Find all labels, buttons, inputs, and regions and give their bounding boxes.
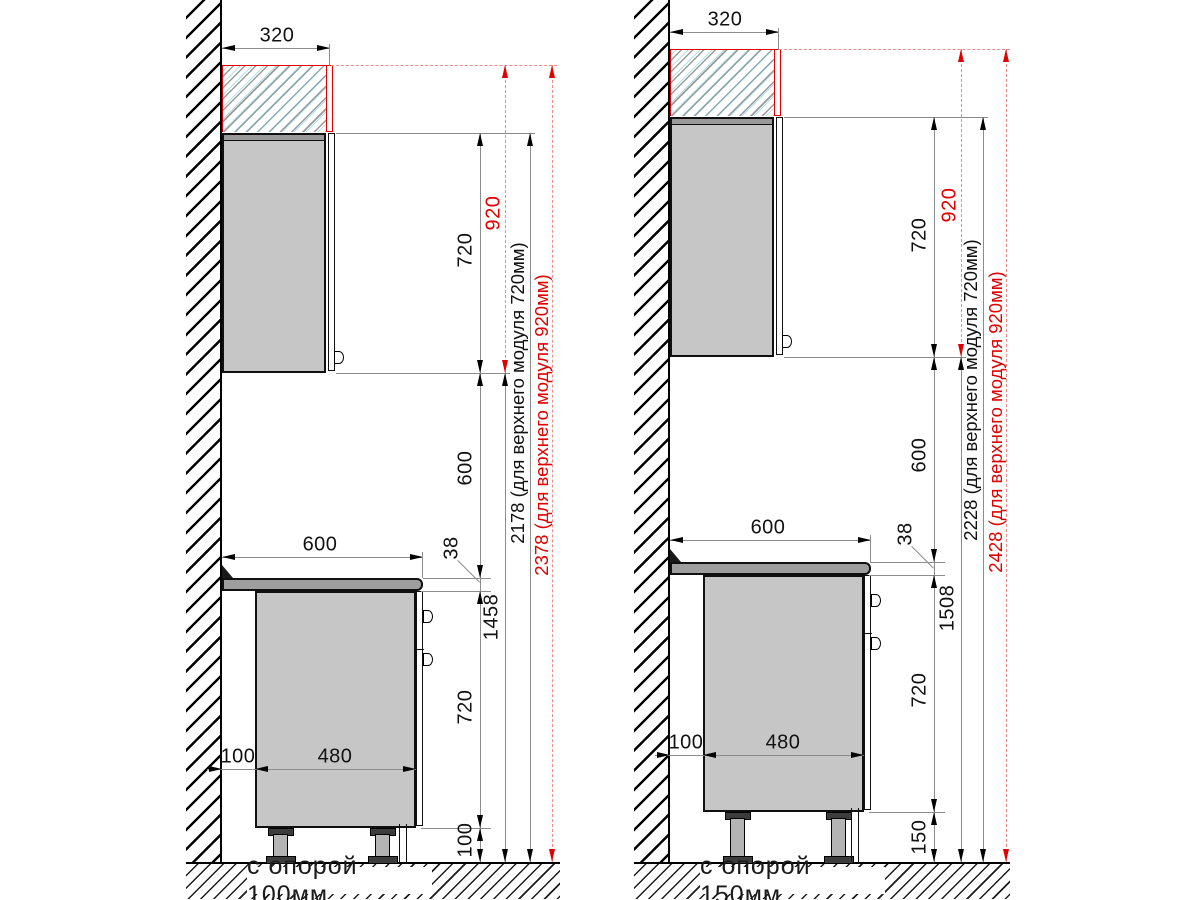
arrowhead [502, 849, 508, 862]
dim-chain-line [934, 117, 935, 862]
door-knob [782, 335, 792, 348]
dim-line-base-depth [655, 755, 864, 756]
dim-support: 100 [455, 823, 478, 858]
base-cabinet-door [416, 591, 423, 826]
upper-cabinet-door [328, 133, 335, 371]
tall-module-door-outline [326, 65, 333, 132]
dim-splash-gap: 600 [909, 438, 932, 473]
door-knob [871, 594, 881, 607]
ext-line-module-top [784, 117, 988, 118]
dim-line-top-depth [670, 32, 779, 33]
tall-module-zone [670, 49, 776, 116]
arrowhead [477, 565, 483, 578]
ext-line [329, 44, 330, 66]
arrowhead [477, 815, 483, 828]
upper-cabinet-top-panel [224, 135, 324, 141]
ext-line-920-top [779, 49, 1010, 50]
arrowhead [477, 828, 483, 841]
dim-chain-line [480, 133, 481, 862]
ext-line-module-bottom [784, 357, 966, 358]
base-cabinet [703, 575, 864, 812]
base-cabinet-door [864, 575, 871, 810]
arrowhead [931, 849, 937, 862]
dim-counter-depth: 600 [303, 534, 338, 557]
dim-upper-module-920: 920 [483, 196, 506, 231]
dim-line-total-720 [983, 117, 984, 862]
arrowhead [477, 373, 483, 386]
arrowhead [1003, 849, 1009, 862]
door-knob [334, 351, 344, 364]
dim-wall-gap: 100 [221, 746, 256, 769]
dim-line-counter-depth [222, 557, 423, 558]
dim-wall-gap: 100 [669, 732, 704, 755]
arrowhead [931, 344, 937, 357]
splashback-wedge [670, 549, 681, 562]
dim-counter-thickness: 38 [441, 536, 464, 559]
arrowhead [255, 766, 268, 772]
arrowhead [931, 117, 937, 130]
arrowhead [980, 117, 986, 130]
dim-line-top-depth [222, 48, 330, 49]
arrowhead [477, 360, 483, 373]
splashback-wedge [222, 565, 233, 578]
dim-splash-gap: 600 [455, 451, 478, 486]
arrowhead [477, 133, 483, 146]
arrowhead [403, 766, 416, 772]
arrowhead [527, 849, 533, 862]
dim-worktop-level: 1458 [481, 594, 504, 641]
dim-total-height-720: 2228 (для верхнего модуля 720мм) [960, 239, 982, 540]
panel-caption: с опорой 150мм [700, 867, 885, 894]
dim-total-height-920: 2428 (для верхнего модуля 920мм) [985, 271, 1007, 572]
arrowhead [222, 554, 235, 560]
upper-cabinet-top-panel [672, 119, 772, 125]
drawer-door-split [416, 649, 424, 650]
arrowhead [851, 752, 864, 758]
dim-top-depth: 320 [708, 9, 743, 32]
arrowhead [958, 849, 964, 862]
dim-top-depth: 320 [260, 25, 295, 48]
wall-section [186, 0, 222, 862]
ext-line-module-bottom [336, 373, 510, 374]
technical-drawing: 320 600 100 480 720 600 38 720 100 920 1… [0, 0, 1200, 900]
arrowhead [549, 849, 555, 862]
dim-total-height-920: 2378 (для верхнего модуля 920мм) [531, 274, 553, 575]
tall-module-zone [222, 65, 328, 132]
dim-line-base-depth [207, 769, 416, 770]
panel-caption: с опорой 100мм [247, 867, 432, 894]
dim-base-depth: 480 [318, 746, 353, 769]
dim-upper-module: 720 [909, 218, 932, 253]
drawer-door-split [864, 633, 872, 634]
arrowhead [1003, 49, 1009, 62]
base-cabinet [255, 591, 416, 828]
dim-line-1458 [505, 373, 506, 862]
arrowhead [527, 133, 533, 146]
arrowhead [931, 799, 937, 812]
ext-line-920-top [331, 65, 557, 66]
arrowhead [670, 29, 683, 35]
countertop [222, 578, 423, 591]
dim-counter-depth: 600 [751, 517, 786, 540]
door-knob [423, 610, 433, 623]
arrowhead [931, 812, 937, 825]
countertop [670, 562, 871, 575]
tall-module-door-outline [774, 49, 781, 116]
dim-support: 150 [909, 820, 932, 855]
arrowhead [931, 549, 937, 562]
arrowhead [502, 65, 508, 78]
arrowhead [670, 537, 683, 543]
dim-base-module: 720 [455, 690, 478, 725]
arrowhead [703, 752, 716, 758]
dim-line-counter-depth [670, 540, 871, 541]
door-knob [871, 637, 881, 650]
arrowhead [980, 849, 986, 862]
dim-upper-module: 720 [455, 233, 478, 268]
arrowhead [477, 849, 483, 862]
upper-cabinet [222, 133, 326, 373]
arrowhead [549, 65, 555, 78]
upper-cabinet-door [776, 117, 783, 355]
ext-line [778, 28, 779, 50]
ext-line [870, 535, 871, 563]
dim-counter-thickness: 38 [895, 522, 918, 545]
dim-upper-module-920: 920 [939, 188, 962, 223]
arrowhead [931, 357, 937, 370]
dim-base-depth: 480 [766, 732, 801, 755]
arrowhead [222, 45, 235, 51]
wall-section [634, 0, 670, 862]
dim-worktop-level: 1508 [937, 585, 960, 632]
door-knob [423, 653, 433, 666]
upper-cabinet [670, 117, 774, 357]
arrowhead [958, 49, 964, 62]
dim-base-module: 720 [909, 673, 932, 708]
ext-line [422, 552, 423, 578]
dim-total-height-720: 2178 (для верхнего модуля 720мм) [507, 242, 529, 543]
